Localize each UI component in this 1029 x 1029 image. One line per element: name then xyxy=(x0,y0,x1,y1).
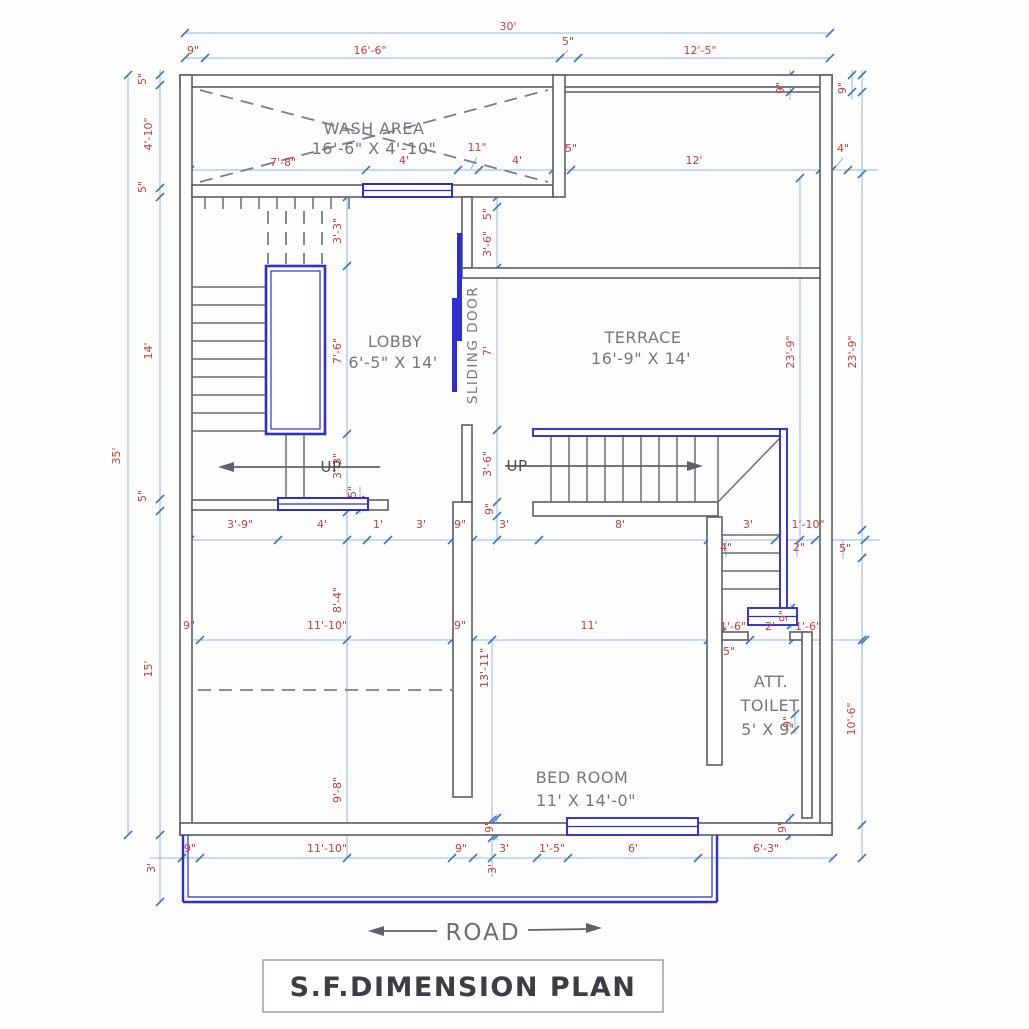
wall xyxy=(192,185,363,197)
wall xyxy=(462,425,472,502)
dim-label: 3' xyxy=(499,842,509,855)
wall xyxy=(553,75,565,197)
wall xyxy=(820,75,832,835)
dim-label: 35' xyxy=(110,447,123,464)
wall xyxy=(707,517,722,765)
floor-plan-page: 30'9"16'-6"5"12'-5"9"9"4"7'-8"4'11"4'5"1… xyxy=(0,0,1029,1029)
blue-element xyxy=(780,429,787,609)
dim-label: 4'-10" xyxy=(142,117,155,150)
dim-label: 9'-8" xyxy=(331,777,344,803)
dim-label: 1'-6" xyxy=(795,620,821,633)
dim-label: 7' xyxy=(481,346,494,356)
dim-label: 8' xyxy=(615,518,625,531)
dim-label: 8'-4" xyxy=(331,587,344,613)
dim-label: 11' xyxy=(580,619,597,632)
att-toilet-label-1: ATT. xyxy=(754,672,788,691)
wall xyxy=(180,75,832,87)
dim-label: 7'-6" xyxy=(331,338,344,364)
lobby-size: 6'-5" X 14' xyxy=(348,353,437,372)
dim-label: 5" xyxy=(481,208,494,220)
dim-label: 30' xyxy=(499,20,516,33)
dim-label: 7'-8" xyxy=(270,156,296,169)
dim-label: 11'-10" xyxy=(307,842,347,855)
walls xyxy=(180,75,832,835)
page-title: S.F.DIMENSION PLAN xyxy=(290,972,637,1003)
sliding-door-panel xyxy=(452,298,457,392)
up-label-right: UP xyxy=(506,457,527,475)
up-label-left: UP xyxy=(320,458,341,476)
wall xyxy=(533,502,718,516)
wall xyxy=(452,185,553,197)
dim-label: 5" xyxy=(565,142,577,155)
dim-label: 4" xyxy=(720,541,732,554)
dim-label: 9" xyxy=(187,44,199,57)
dim-label: 3' xyxy=(743,518,753,531)
bed-room-label: BED ROOM xyxy=(536,768,629,787)
wall xyxy=(192,500,278,510)
dim-label: 9" xyxy=(454,518,466,531)
dim-label: 4" xyxy=(837,142,849,155)
sliding-door-label: SLIDING DOOR xyxy=(465,286,481,404)
wall xyxy=(722,632,748,640)
annotations: ROAD S.F.DIMENSION PLAN xyxy=(263,920,663,1012)
wall xyxy=(462,268,820,278)
lobby-label: LOBBY xyxy=(368,332,422,351)
wall xyxy=(462,197,472,268)
dim-label: 13'-11" xyxy=(478,648,491,688)
dim-label: 3'-3" xyxy=(331,218,344,244)
att-toilet-label-2: TOILET xyxy=(740,696,800,715)
dim-label: 9" xyxy=(454,619,466,632)
dim-label: 4' xyxy=(317,518,327,531)
dim-label: 23'-9" xyxy=(846,335,859,368)
terrace-label: TERRACE xyxy=(604,328,682,347)
dim-label: 9" xyxy=(777,610,790,622)
dim-label: 9" xyxy=(184,842,196,855)
bed-room-size: 11' X 14'-0" xyxy=(536,791,636,810)
wall xyxy=(453,502,472,797)
att-toilet-size: 5' X 9' xyxy=(741,720,795,739)
wall xyxy=(180,823,567,835)
dim-label: 1'-10" xyxy=(791,518,824,531)
dim-label: 1'-6" xyxy=(720,620,746,633)
dim-label: 2' xyxy=(765,620,775,633)
floor-plan-drawing: 30'9"16'-6"5"12'-5"9"9"4"7'-8"4'11"4'5"1… xyxy=(0,0,1029,1029)
room-labels: WASH AREA 16'-6" X 4'-10" LOBBY 6'-5" X … xyxy=(312,119,800,810)
dim-label: 1' xyxy=(373,518,383,531)
dim-label: 12' xyxy=(685,154,702,167)
dim-label: 4' xyxy=(512,154,522,167)
dim-label: 9" xyxy=(455,842,467,855)
dim-label: 9" xyxy=(776,821,789,833)
dim-label: 14' xyxy=(142,342,155,359)
sliding-door-panel xyxy=(457,233,462,341)
dim-label: 23'-9" xyxy=(784,335,797,368)
dim-label: 2" xyxy=(793,541,805,554)
dim-label: 3'-9" xyxy=(227,518,253,531)
dim-label: 3'-6" xyxy=(481,231,494,257)
dim-label: 10'-6" xyxy=(845,702,858,735)
terrace-size: 16'-9" X 14' xyxy=(591,349,691,368)
dim-label: 3' xyxy=(416,518,426,531)
dim-label: 9" xyxy=(836,82,849,94)
dim-label: 5" xyxy=(136,490,149,502)
dim-label: 3' xyxy=(486,864,499,874)
dim-label: 9" xyxy=(774,82,787,94)
dim-label: 9" xyxy=(183,619,195,632)
dim-label: 5" xyxy=(839,542,851,555)
dim-label: 5" xyxy=(723,645,735,658)
dim-label: 5" xyxy=(136,73,149,85)
dim-label: 11'-10" xyxy=(307,619,347,632)
dim-label: 9" xyxy=(483,503,496,515)
dim-label: 1'-5" xyxy=(539,842,565,855)
dim-label: 3' xyxy=(145,863,158,873)
blue-element xyxy=(271,271,320,429)
wash-area-size: 16'-6" X 4'-10" xyxy=(312,139,437,158)
wall xyxy=(180,75,192,835)
wash-area-label: WASH AREA xyxy=(324,119,425,138)
dim-label: 3' xyxy=(499,518,509,531)
dim-label: 12'-5" xyxy=(683,44,716,57)
wall xyxy=(802,632,812,818)
wall xyxy=(367,500,388,510)
blue-element xyxy=(533,429,787,436)
wall xyxy=(698,823,832,835)
dim-label: 16'-6" xyxy=(353,44,386,57)
dim-label: 6' xyxy=(628,842,638,855)
dim-label: 3'-6" xyxy=(481,451,494,477)
road-label: ROAD xyxy=(445,920,520,946)
dim-label: 11" xyxy=(467,141,486,154)
dim-label: 6'-3" xyxy=(753,842,779,855)
dim-label: 9" xyxy=(483,821,496,833)
dim-label: 5" xyxy=(136,181,149,193)
dim-label: 15' xyxy=(142,660,155,677)
dim-label: 5" xyxy=(562,35,574,48)
dim-label: 5" xyxy=(346,486,359,498)
dimension-labels: 30'9"16'-6"5"12'-5"9"9"4"7'-8"4'11"4'5"1… xyxy=(110,20,859,874)
